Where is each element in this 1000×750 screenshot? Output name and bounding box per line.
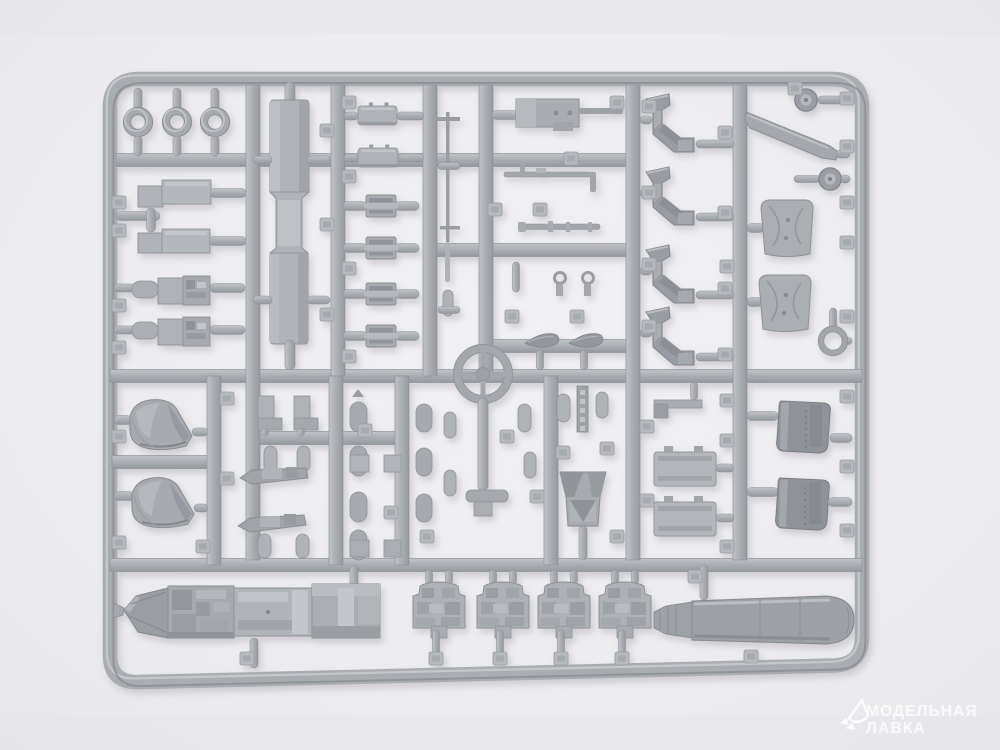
svg-text:ЛАВКА: ЛАВКА (866, 720, 926, 737)
svg-text:МОДЕЛЬНАЯ: МОДЕЛЬНАЯ (866, 703, 978, 720)
